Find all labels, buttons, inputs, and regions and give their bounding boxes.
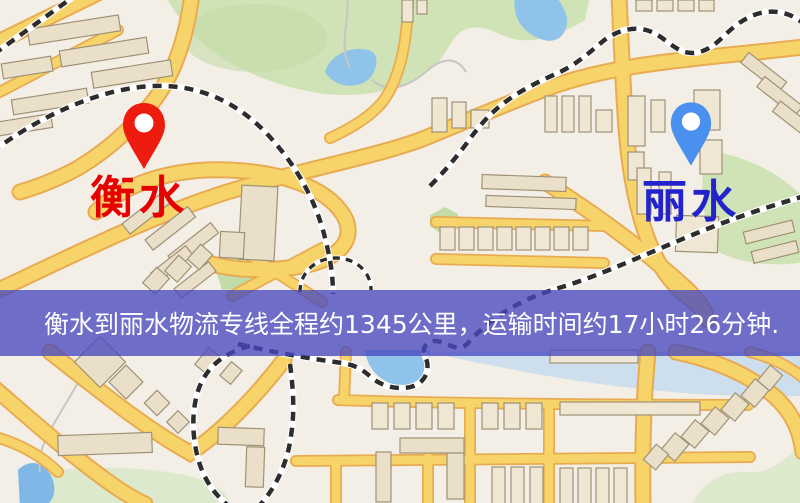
map-viewport[interactable]: 衡水 丽水 衡水到丽水物流专线全程约1345公里，运输时间约17小时26分钟. xyxy=(0,0,800,503)
destination-city-label: 丽水 xyxy=(642,179,740,224)
route-info-banner: 衡水到丽水物流专线全程约1345公里，运输时间约17小时26分钟. xyxy=(0,290,800,356)
origin-city-label: 衡水 xyxy=(90,175,188,220)
route-info-text: 衡水到丽水物流专线全程约1345公里，运输时间约17小时26分钟. xyxy=(0,305,779,341)
red-location-pin-icon[interactable] xyxy=(120,101,168,171)
map-canvas xyxy=(0,0,800,503)
blue-location-pin-icon[interactable] xyxy=(668,100,714,168)
